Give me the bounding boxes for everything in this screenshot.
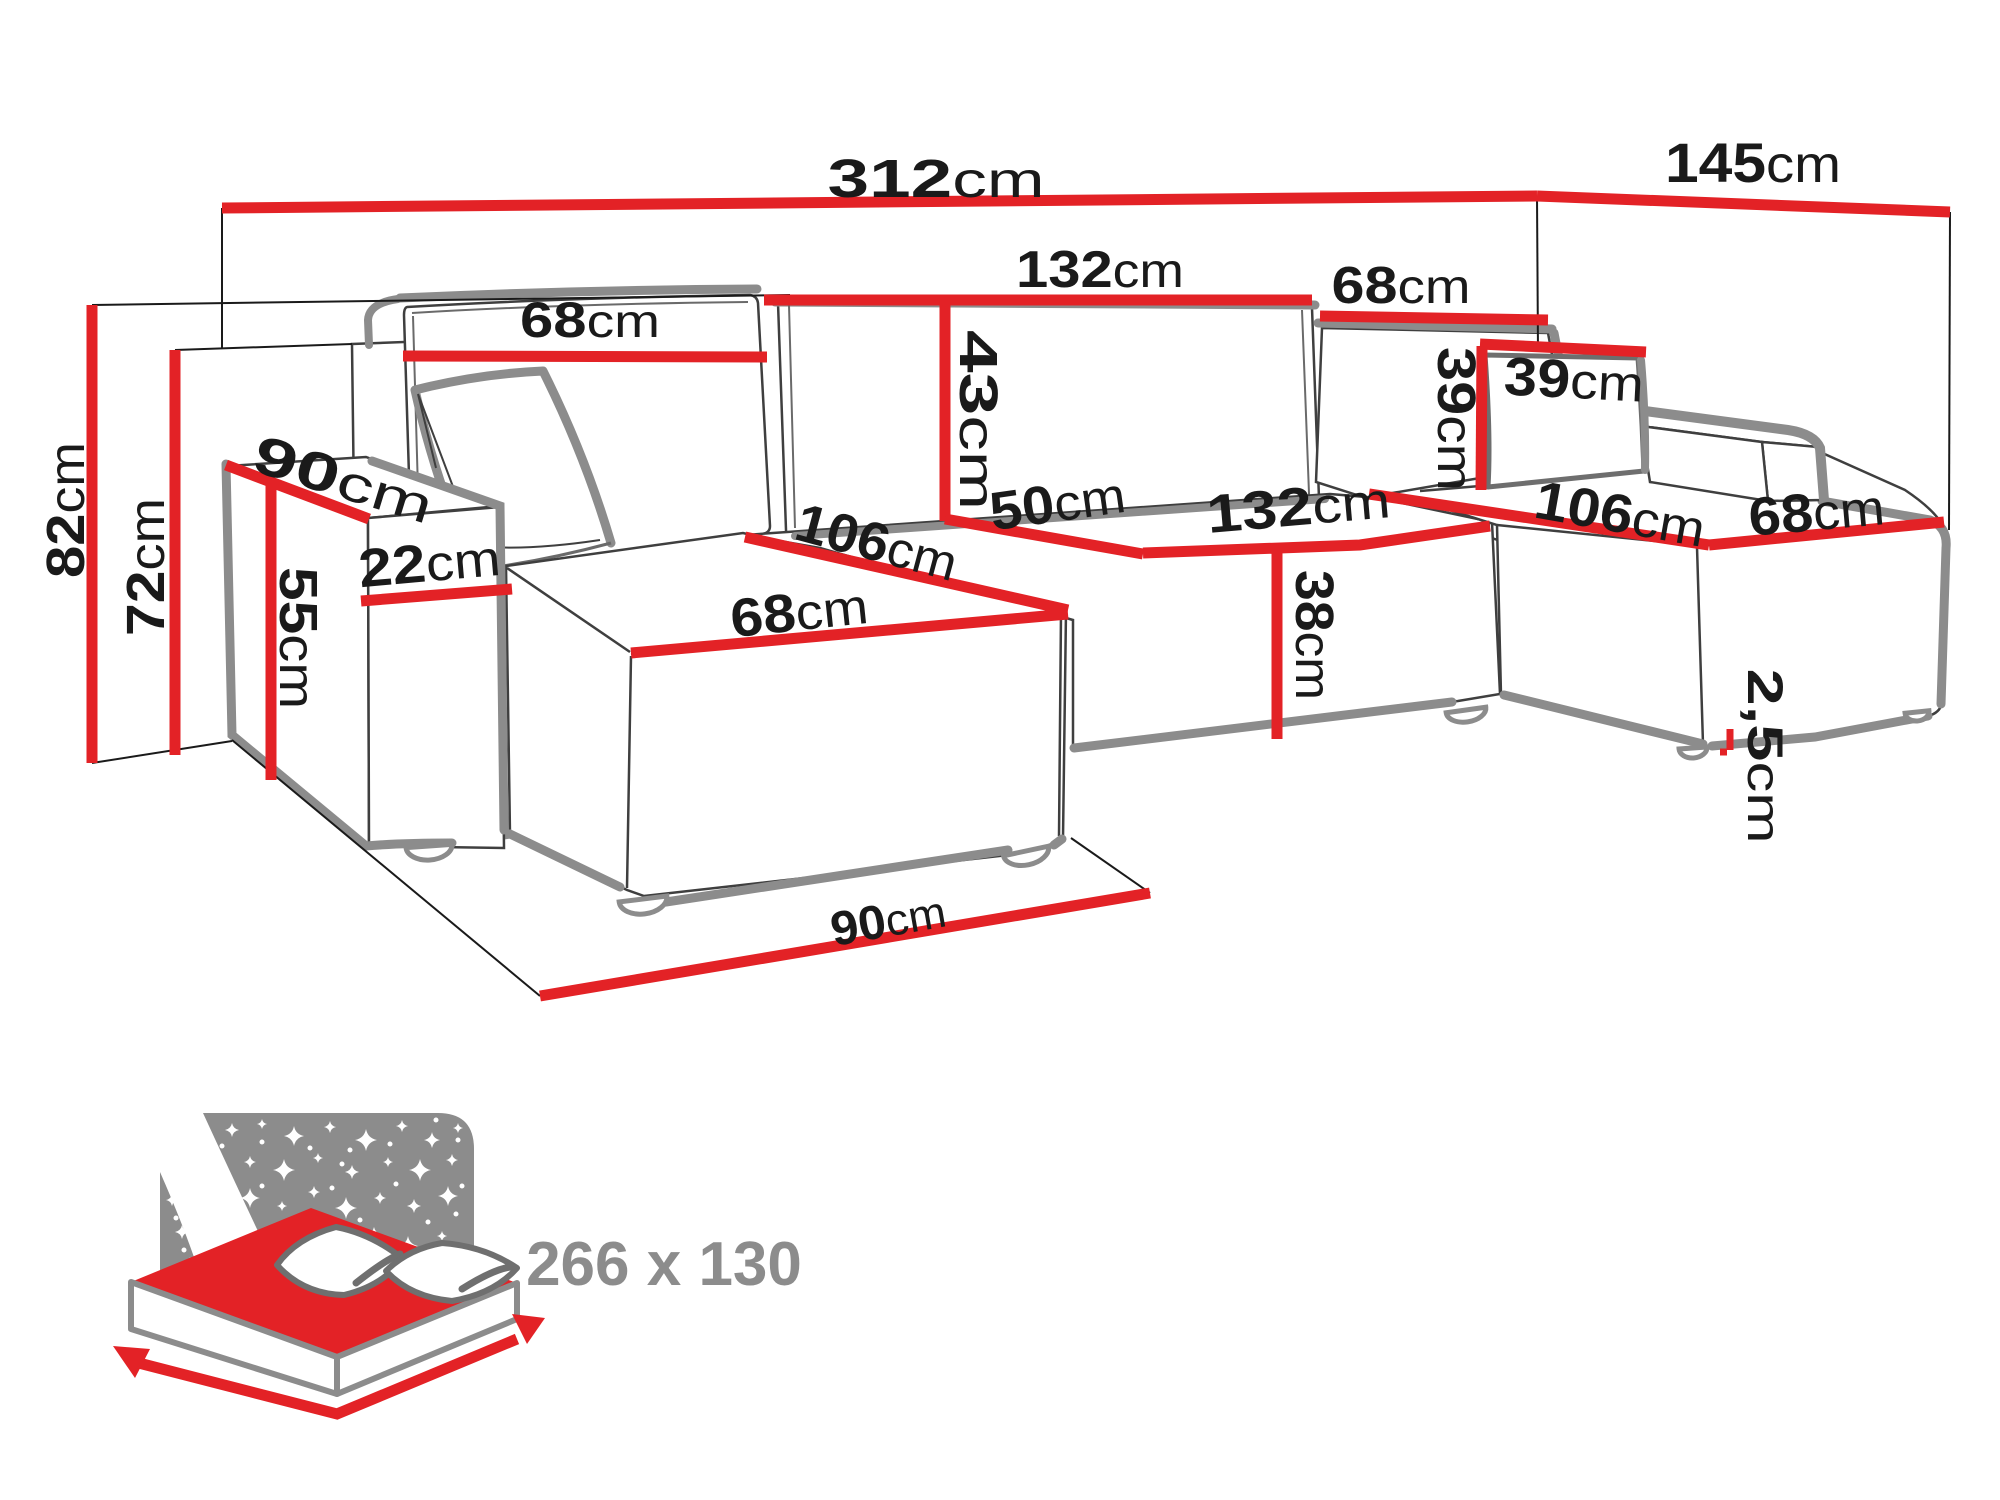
svg-text:312cm: 312cm bbox=[828, 149, 1045, 209]
svg-text:55cm: 55cm bbox=[268, 567, 328, 709]
svg-text:39cm: 39cm bbox=[1426, 347, 1486, 491]
svg-text:90cm: 90cm bbox=[827, 885, 950, 957]
svg-text:266 x 130: 266 x 130 bbox=[526, 1230, 802, 1299]
svg-text:2,5cm: 2,5cm bbox=[1737, 669, 1793, 844]
svg-text:82cm: 82cm bbox=[36, 442, 96, 578]
svg-text:72cm: 72cm bbox=[116, 498, 176, 636]
svg-text:38cm: 38cm bbox=[1284, 570, 1344, 700]
svg-text:68cm: 68cm bbox=[520, 292, 660, 348]
svg-text:145cm: 145cm bbox=[1665, 131, 1841, 194]
svg-text:132cm: 132cm bbox=[1016, 241, 1184, 299]
svg-text:68cm: 68cm bbox=[1332, 257, 1471, 315]
svg-text:39cm: 39cm bbox=[1502, 346, 1645, 413]
